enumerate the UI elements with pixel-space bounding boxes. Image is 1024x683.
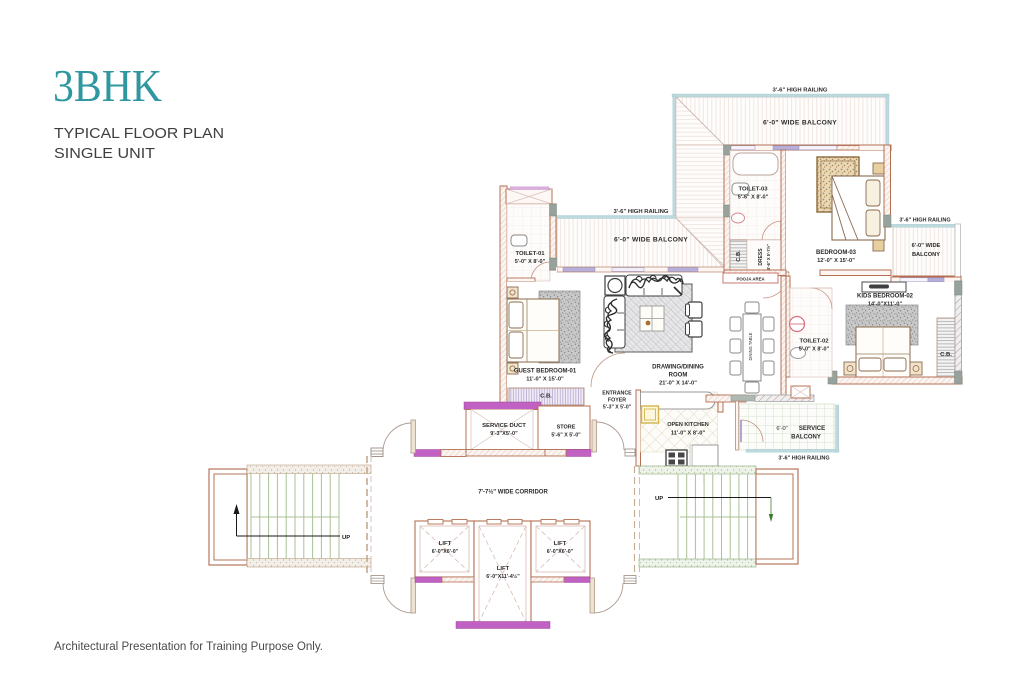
- svg-text:9'-3"X5'-0": 9'-3"X5'-0": [490, 431, 518, 437]
- svg-text:12'-0" X 15'-0": 12'-0" X 15'-0": [817, 258, 855, 264]
- svg-text:DRESS: DRESS: [758, 248, 764, 266]
- svg-text:LIFT: LIFT: [554, 541, 567, 547]
- svg-text:14'-0"X11'-0": 14'-0"X11'-0": [868, 302, 903, 308]
- svg-text:ENTRANCE: ENTRANCE: [602, 391, 632, 397]
- svg-text:3'-6" HIGH RAILING: 3'-6" HIGH RAILING: [773, 88, 828, 94]
- svg-text:3'-6" HIGH RAILING: 3'-6" HIGH RAILING: [778, 456, 829, 462]
- svg-text:11'-0" X 15'-0": 11'-0" X 15'-0": [526, 377, 564, 383]
- svg-text:OPEN KITCHEN: OPEN KITCHEN: [667, 422, 709, 428]
- svg-text:LIFT: LIFT: [439, 541, 452, 547]
- svg-text:UP: UP: [655, 496, 663, 502]
- svg-text:5'-6" X 8'-0": 5'-6" X 8'-0": [738, 195, 769, 201]
- svg-text:TYPICAL FLOOR PLAN: TYPICAL FLOOR PLAN: [54, 125, 224, 142]
- svg-text:6'-0" WIDE BALCONY: 6'-0" WIDE BALCONY: [763, 120, 837, 127]
- svg-text:6'-0"X6'-0": 6'-0"X6'-0": [547, 549, 574, 555]
- svg-text:C.B.: C.B.: [940, 352, 952, 358]
- svg-text:LIFT: LIFT: [497, 566, 510, 572]
- svg-text:BALCONY: BALCONY: [791, 435, 821, 441]
- svg-text:3'-6" HIGH RAILING: 3'-6" HIGH RAILING: [899, 218, 950, 224]
- svg-text:TOILET-03: TOILET-03: [738, 187, 768, 193]
- svg-text:C.B.: C.B.: [736, 250, 742, 262]
- svg-text:C.B.: C.B.: [540, 394, 552, 400]
- svg-text:TOILET-01: TOILET-01: [515, 251, 545, 257]
- svg-text:6'-0" WIDE BALCONY: 6'-0" WIDE BALCONY: [614, 237, 688, 244]
- svg-text:STORE: STORE: [557, 425, 576, 431]
- svg-text:6'-0"X11'-4½": 6'-0"X11'-4½": [486, 573, 520, 580]
- svg-text:BEDROOM-03: BEDROOM-03: [816, 250, 857, 256]
- svg-text:11'-0" X 8'-0": 11'-0" X 8'-0": [671, 431, 706, 437]
- svg-text:GUEST BEDROOM-01: GUEST BEDROOM-01: [514, 369, 577, 375]
- svg-text:5'-6" X 5'-0": 5'-6" X 5'-0": [551, 433, 581, 439]
- svg-text:7'-7½" WIDE CORRIDOR: 7'-7½" WIDE CORRIDOR: [478, 489, 548, 496]
- svg-text:Architectural Presentation for: Architectural Presentation for Training …: [54, 639, 323, 653]
- svg-text:5'-3" X 5'-0": 5'-3" X 5'-0": [603, 405, 632, 411]
- svg-text:FOYER: FOYER: [608, 398, 626, 404]
- svg-text:SERVICE: SERVICE: [799, 426, 825, 432]
- svg-text:5'-0" X 8'-0": 5'-0" X 8'-0": [799, 347, 830, 353]
- svg-text:POOJA AREA: POOJA AREA: [736, 277, 764, 282]
- svg-text:5'-6" X 5'-7½": 5'-6" X 5'-7½": [766, 244, 771, 270]
- svg-text:DINING TABLE: DINING TABLE: [748, 332, 753, 360]
- svg-text:BALCONY: BALCONY: [912, 252, 940, 258]
- svg-text:KIDS BEDROOM-02: KIDS BEDROOM-02: [857, 294, 914, 300]
- svg-text:TOILET-02: TOILET-02: [799, 339, 829, 345]
- svg-text:SINGLE UNIT: SINGLE UNIT: [54, 145, 155, 162]
- svg-text:3BHK: 3BHK: [53, 60, 162, 111]
- svg-text:21'-0" X 14'-0": 21'-0" X 14'-0": [659, 381, 697, 387]
- svg-text:6'-0"X6'-0": 6'-0"X6'-0": [432, 549, 459, 555]
- svg-text:SERVICE DUCT: SERVICE DUCT: [482, 423, 526, 429]
- svg-text:UP: UP: [342, 535, 350, 541]
- svg-text:6'-0": 6'-0": [776, 426, 787, 432]
- svg-text:ROOM: ROOM: [669, 373, 688, 379]
- svg-text:6'-0" WIDE: 6'-0" WIDE: [912, 243, 941, 249]
- svg-text:3'-6" HIGH RAILING: 3'-6" HIGH RAILING: [614, 209, 669, 215]
- svg-text:DRAWING/DINING: DRAWING/DINING: [652, 365, 704, 371]
